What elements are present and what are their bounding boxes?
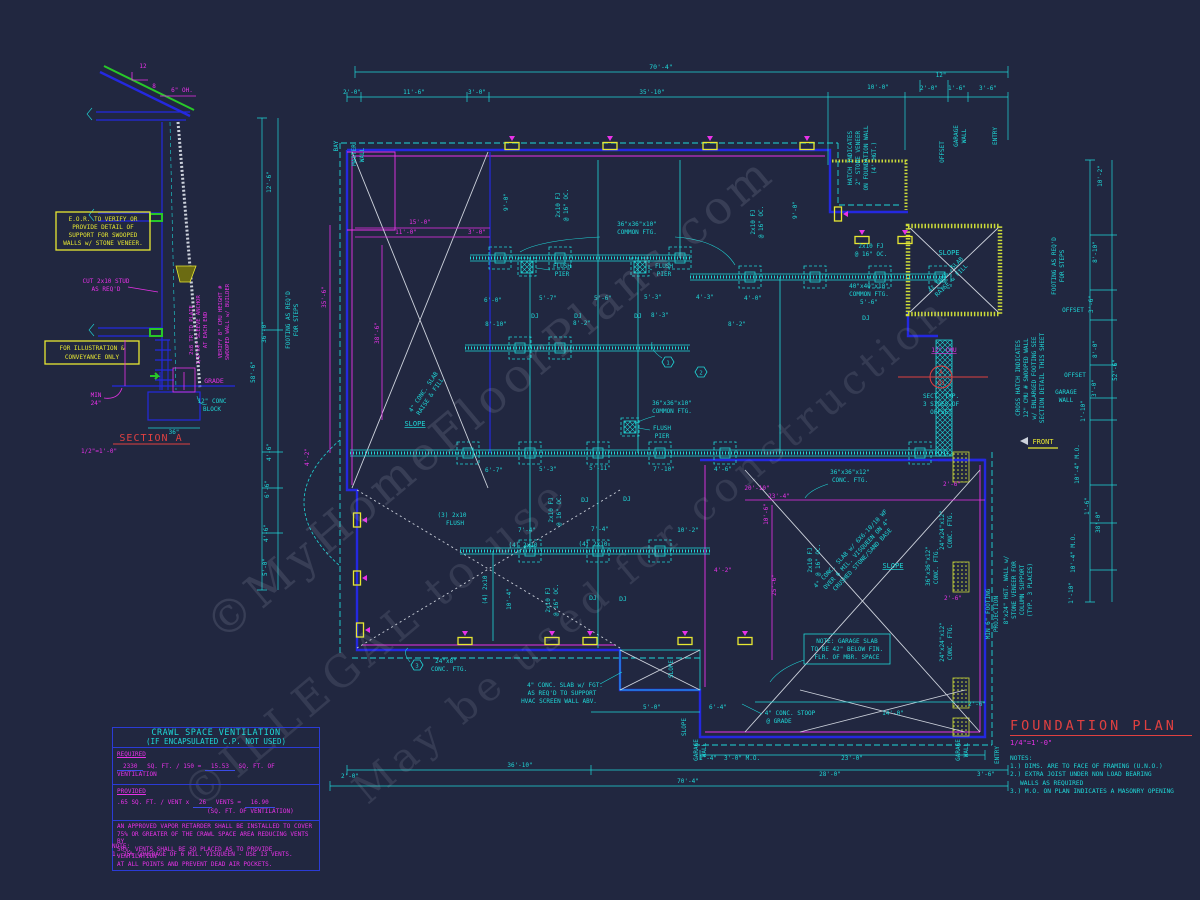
provided-formula: .65 SQ. FT. / VENT x [117,799,189,806]
dim: 4'-0" [744,295,762,302]
footing-steps-note: FOOTING AS REQ'D FOR STEPS [285,291,300,349]
svg-text:PIER: PIER [655,433,670,440]
dj-label: DJ [581,496,589,504]
svg-text:12" CMU: 12" CMU [931,347,957,354]
svg-text:40"x40"x10": 40"x40"x10" [849,283,889,290]
cut-stud-note: AS REQ'D [92,286,121,293]
note-label: NOTE: [112,843,372,851]
svg-text:2" STONE VENEER: 2" STONE VENEER [855,131,862,186]
dim: 4'-6" [263,524,270,542]
svg-text:VERIFY 8" CMU HEIGHT #: VERIFY 8" CMU HEIGHT # [218,285,224,359]
dim: 2'-0" [920,85,938,92]
dim: 2'-6" [968,701,986,708]
common-ftg-40-label: 40"x40"x10" COMMON FTG. 5'-6" [849,283,889,306]
note-line: 2.) EXTRA JOIST UNDER NON LOAD BEARING [1010,771,1192,779]
svg-text:4" CONC. SLAB w/ FGT.: 4" CONC. SLAB w/ FGT. [527,682,603,689]
dim: 8'-2" [728,321,746,328]
svg-text:COMMON FTG.: COMMON FTG. [849,291,889,298]
required-area-value: 2330 [117,763,143,772]
svg-text:PIER: PIER [555,271,570,278]
min-footing-note: MIN 6" FOOTING PROJECTION [985,588,1000,639]
section-a-scale: 1/2"=1'-0" [81,448,117,455]
svg-text:CONC. FTG.: CONC. FTG. [947,512,954,548]
svg-text:3: 3 [415,664,418,670]
illustration-note-line: FOR ILLUSTRATION & [59,345,124,352]
svg-text:CONC. FTG.: CONC. FTG. [947,624,954,660]
svg-text:24"x8": 24"x8" [435,658,457,665]
crawl-table-footnote: NOTE: 1. 75% COVERAGE OF 6 MIL. VISQUEEN… [112,843,372,859]
title-block: FOUNDATION PLAN 1/4"=1'-0" NOTES: 1.) DI… [1010,718,1192,796]
wall-tag: OFFSET [1064,372,1086,379]
dim: 7'-4" [591,526,609,533]
illustration-note-line: CONVEYANCE ONLY [65,354,120,361]
provided-mid: VENTS = [216,799,241,806]
flush4-label: (4) 2x10 [509,542,538,549]
dim: 9'-0" [503,193,510,211]
slope-label: SLOPE [404,420,425,428]
conc-ftg-3636-label: 36"x36"x12" CONC. FTG. [925,546,940,586]
flush3-label: (3) 2x10 FLUSH [438,512,467,527]
slope-label: SLOPE [668,660,675,678]
dj-label: DJ [531,312,539,320]
dim: 4'-6" [266,443,273,461]
flush-pier-label: FLUSH PIER [648,263,673,278]
pitch-run: 8 [152,83,156,90]
cross-hatch-note: CROSS HATCH INDICATES 12" CMU # SWOOPED … [1015,332,1046,423]
dimension-lines [257,66,1117,791]
wall-tag: GARAGE WALL [693,739,708,761]
conc-ftg-3636-label: 36"x36"x12" CONC. FTG. [805,469,870,498]
slope-label: SLOPE [938,249,959,257]
svg-text:Ø3: Ø3 [937,380,945,387]
dim: 4'-6" [714,466,732,473]
blueprint-sheet: 12 8 6" OH. E.O.R. TO VERIFY OR PROVIDE … [0,0,1200,900]
dim: 38'-0" [1095,511,1102,533]
cut-stud-note: CUT 2x10 STUD [83,278,130,285]
provided-vent-count: 26 [193,799,212,808]
plan-scale: 1/4"=1'-0" [1010,739,1192,747]
dim: 7'-10" [653,466,675,473]
plan-labels: 70'-4" 2'-0" 11'-6" 3'-0" 35'-10" 10'-0"… [250,63,1119,785]
hex-marker: 2 [695,367,707,377]
svg-text:CONC. FTG.: CONC. FTG. [933,548,940,584]
dim: 6'-7" [485,467,503,474]
eor-note-line: SUPPORT FOR SWOOPED [69,232,138,239]
fj-note: 2x10 FJ@ 16" OC. [545,584,560,617]
verify-note: VERIFY 8" CMU HEIGHT # SWOOPED WALL w/ B… [218,283,231,360]
svg-text:1/2"x4" SLEEVE ANCHOR: 1/2"x4" SLEEVE ANCHOR [196,295,202,365]
stoop-note: 4" CONC. STOOP @ GRADE [742,704,816,725]
flush4-label: (4) 2x10 [579,541,608,548]
dim: 23'-4" [768,493,790,500]
eor-note-line: PROVIDE DETAIL OF [72,224,134,231]
notes-label: NOTES: [1010,755,1192,763]
dim: 3'-0" M.O. [724,755,760,762]
svg-text:ON FOUNDATION WALL: ON FOUNDATION WALL [863,125,870,190]
required-result: 15.53 [205,763,235,772]
footing-steps-note: FOOTING AS REQ'D FOR STEPS [1051,237,1066,295]
svg-text:@ 16" OC.: @ 16" OC. [563,189,570,222]
anchor-note: 2x8 TR'TD PLATE 1/2"x4" SLEEVE ANCHOR AT… [189,295,209,365]
crawl-table-subtitle: (IF ENCAPSULATED C.P. NOT USED) [113,738,319,749]
svg-text:FOOTING AS REQ'D: FOOTING AS REQ'D [1051,237,1058,295]
provided-result: 16.90 [245,799,275,808]
svg-text:FLUSH: FLUSH [446,520,464,527]
svg-text:36"x36"x12": 36"x36"x12" [925,546,932,586]
svg-text:PIER: PIER [657,271,672,278]
dim: 36'-10" [507,762,532,769]
dj-label: DJ [862,314,870,322]
dim: 5'-11" [589,465,611,472]
wall-tag: OFFSET [939,141,946,163]
svg-text:AT EACH END: AT EACH END [203,312,209,348]
svg-text:@ 16" OC.: @ 16" OC. [556,494,563,527]
dim: 6'-0" [484,297,502,304]
stone-hatch-note: HATCH INDICATES 2" STONE VENEER ON FOUND… [847,125,878,190]
svg-text:A: A [939,369,943,376]
svg-text:CONC. FTG.: CONC. FTG. [431,666,467,673]
conc-ftg-24x8: 3 24"x8" CONC. FTG. [405,648,467,673]
eor-note-line: E.O.R. TO VERIFY OR [69,216,138,223]
svg-text:GARAGE: GARAGE [955,739,962,761]
wall-tag: WALL [1059,397,1074,404]
svg-text:w/ ENLARGED FOOTING SEE: w/ ENLARGED FOOTING SEE [1031,336,1038,419]
svg-text:(TYP. 3 PLACES): (TYP. 3 PLACES) [1027,563,1034,617]
svg-text:WALL: WALL [701,742,708,757]
conc-ftg-2424-label: 24"x24"x12" CONC. FTG. [939,510,954,550]
svg-text:1: 1 [666,361,669,367]
dim: 5'-0" [262,558,269,576]
svg-text:2x10 FJ: 2x10 FJ [545,587,552,612]
svg-text:MIN 6" FOOTING: MIN 6" FOOTING [985,588,992,639]
dim: 10'-0" [867,84,889,91]
dj-label: DJ [634,312,642,320]
dim: 4'-3" [696,294,714,301]
fj-note: 2x10 FJ@ 16" OC. [548,494,563,527]
dj-label: DJ [623,495,631,503]
dim: 23'-0" [841,755,863,762]
grade-label: GRADE [204,377,224,385]
dim: 3'-6" [979,85,997,92]
dim: 3'-0" [468,89,486,96]
dim: 5'-3" [539,466,557,473]
wall-tag: OFFSET [1062,307,1084,314]
dim: 35'-10" [639,89,664,96]
garage-slab-note-box: NOTE: GARAGE SLAB TO BE 42" BELOW FIN. F… [770,634,890,682]
flush4-label: (4) 2x10 [482,575,489,604]
dim: 2'-0" [343,89,361,96]
note-line: WALLS AS REQUIRED [1010,780,1192,788]
svg-text:@ 16" OC.: @ 16" OC. [758,206,765,239]
fj-note: 2x10 FJ @ 16" OC. [855,243,888,258]
svg-text:COLUMN SUPPORT: COLUMN SUPPORT [1019,564,1026,615]
fj-note: 2x10 FJ@ 16" OC. [555,189,570,222]
svg-text:WALL: WALL [961,128,968,143]
dim: 20'-10" [744,485,769,492]
svg-text:FLUSH: FLUSH [653,425,671,432]
svg-text:GARAGE: GARAGE [953,125,960,147]
dim: 36'-0" [261,321,268,343]
svg-text:MASTER: MASTER [351,144,358,166]
dim: 15'-0" [409,219,431,226]
wall-tag: GARAGE WALL [955,739,970,761]
dim: 1'-6" [1084,497,1091,515]
svg-text:COMMON FTG.: COMMON FTG. [652,408,692,415]
section-a-title: SECTION A [119,433,182,444]
dim: 8'-3" [651,312,669,319]
dim: 2'-0" [341,773,359,780]
svg-text:24"x24"x12": 24"x24"x12" [939,622,946,662]
svg-text:24"x24"x12": 24"x24"x12" [939,510,946,550]
dim: 10'-4" [506,588,513,610]
dim: 1'-10" [1068,582,1075,604]
slab-raise-label: 4" CONC. SLAB RAISE & FILL [408,370,447,418]
svg-text:2x10 FJ: 2x10 FJ [750,209,757,234]
svg-text:HATCH INDICATES: HATCH INDICATES [847,131,854,186]
svg-text:FLUSH: FLUSH [655,263,673,270]
dim: 52'-6" [1112,359,1119,381]
svg-text:NOTE: GARAGE SLAB: NOTE: GARAGE SLAB [816,638,878,645]
column-support-note: 8"x24" HGT. WALL w/ STONE VENEER FOR COL… [1003,555,1034,624]
dim: 12" [936,72,947,79]
dim: 8'-2" [573,320,591,327]
plan-notes: NOTES: 1.) DIMS. ARE TO FACE OF FRAMING … [1010,755,1192,796]
note-line: 3.) M.O. ON PLAN INDICATES A MASONRY OPE… [1010,788,1192,796]
provided-label: PROVIDED [113,786,319,798]
svg-text:TO BE 42" BELOW FIN.: TO BE 42" BELOW FIN. [811,646,883,653]
dim: 7'-4" [518,527,536,534]
hvac-note: 4" CONC. SLAB w/ FGT. AS REQ'D TO SUPPOR… [521,672,622,705]
svg-text:WALL: WALL [359,147,366,162]
eor-note-line: WALLS w/ STONE VENEER. [63,240,142,247]
dim: 14'-0" [882,710,904,717]
flush-pier-label: FLUSH PIER [536,263,571,278]
svg-text:SECT. TYP.: SECT. TYP. [923,393,959,400]
dim: 5'-7" [539,295,557,302]
dj-label: DJ [574,312,582,320]
dim: 5'-0" [643,704,661,711]
required-label: REQUIRED [113,749,319,761]
wall-tag: BAY [333,140,340,151]
svg-text:2: 2 [699,371,702,377]
svg-text:2x10 FJ: 2x10 FJ [807,547,814,572]
dim: 1'-10" [1080,400,1087,422]
dim: 5'-3" [644,294,662,301]
svg-text:@ 16" OC.: @ 16" OC. [855,251,888,258]
dj-label: DJ [619,595,627,603]
conc-ftg-2424-label: 24"x24"x12" CONC. FTG. [939,622,954,662]
svg-text:FOOTING AS REQ'D: FOOTING AS REQ'D [285,291,292,349]
dim: 6'-6" [264,480,271,498]
dj-label: DJ [589,594,597,602]
block-label: BLOCK [203,406,221,413]
svg-text:2x8 TR'TD PLATE: 2x8 TR'TD PLATE [189,305,195,355]
min-label: MIN [91,392,102,399]
dim: 5'-6" [594,295,612,302]
dim: 2'-6" [944,595,962,602]
dim: 10'-6" [763,503,770,525]
svg-text:FOR STEPS: FOR STEPS [1059,249,1066,282]
dim: 10'-2" [1097,165,1104,187]
section-a-detail: 12 8 6" OH. E.O.R. TO VERIFY OR PROVIDE … [45,63,235,455]
slope-label: SLOPE [882,562,903,570]
svg-text:2x10 FJ: 2x10 FJ [548,497,555,522]
common-ftg-label: 36"x36"x10" COMMON FTG. [520,221,735,265]
dim: 28'-0" [819,771,841,778]
dim: 11'-0" [395,229,417,236]
svg-text:FLUSH: FLUSH [553,263,571,270]
dim: 70'-4" [649,63,672,71]
overhang-label: 6" OH. [171,87,193,94]
dim: 3'-6" [1088,295,1095,313]
hex-marker: 1 [652,342,674,367]
svg-text:(4' HGT.): (4' HGT.) [871,142,878,175]
svg-text:(3) 2x10: (3) 2x10 [438,512,467,519]
svg-text:CROSS HATCH INDICATES: CROSS HATCH INDICATES [1015,340,1022,416]
svg-text:@ 16" OC.: @ 16" OC. [553,584,560,617]
note-line: 1. 75% COVERAGE OF 6 MIL. VISQUEEN - USE… [112,851,372,859]
svg-text:OFFSET: OFFSET [930,409,952,416]
dim: 10'-4" M.O. [1070,533,1077,573]
dim: 35'-6" [321,286,328,308]
svg-text:FOR STEPS: FOR STEPS [293,303,300,336]
svg-text:CONC. FTG.: CONC. FTG. [832,477,868,484]
dim: 8'-0" [1092,340,1099,358]
dim: 70'-4" [677,778,699,785]
dim: 25'-6" [771,574,778,596]
wall-tag: MASTER WALL [351,144,366,166]
svg-text:36"x36"x10": 36"x36"x10" [617,221,657,228]
dim: 12'-6" [266,171,273,193]
svg-text:AS REQ'D TO SUPPORT: AS REQ'D TO SUPPORT [528,690,597,697]
svg-text:3 SIDES OF: 3 SIDES OF [923,401,960,408]
wall-tag: ENTRY [992,127,999,145]
wall-tag: ENTRY [994,746,1001,764]
svg-text:36"x36"x10": 36"x36"x10" [652,400,692,407]
wall-tag: GARAGE WALL [953,125,968,147]
svg-text:2x10 FJ: 2x10 FJ [555,192,562,217]
svg-text:HVAC SCREEN WALL ABV.: HVAC SCREEN WALL ABV. [521,698,597,705]
flush-pier-label: FLUSH PIER [638,425,671,440]
provided-unit: (SQ. FT. OF VENTILATION) [207,808,294,815]
fj-note: 2x10 FJ@ 16" OC. [750,206,765,239]
dim: 3'-6" [977,771,995,778]
dim: 1'-6" [948,85,966,92]
wall-tag: GARAGE [1055,389,1077,396]
front-marker: FRONT [1020,437,1058,448]
dim: 6'-4" [709,704,727,711]
svg-text:4" CONC. STOOP: 4" CONC. STOOP [765,710,816,717]
dim: 4'-2" [304,448,311,466]
dim: 3'-0" [468,229,486,236]
min-value: 24" [91,400,102,407]
svg-text:GARAGE: GARAGE [693,739,700,761]
dim: 2'-6" [943,481,961,488]
svg-text:@ 16" OC.: @ 16" OC. [815,544,822,577]
required-formula: SQ. FT. / 150 = [147,763,201,770]
page-title: FOUNDATION PLAN [1010,718,1192,736]
svg-text:WALL: WALL [963,742,970,757]
fj-note: 2x10 FJ@ 16" OC. [807,544,822,577]
svg-text:COMMON FTG.: COMMON FTG. [617,229,657,236]
svg-text:STONE VENEER FOR: STONE VENEER FOR [1011,561,1018,619]
dim: 58'-6" [250,361,257,383]
svg-text:8"x24" HGT. WALL w/: 8"x24" HGT. WALL w/ [1003,555,1010,624]
svg-text:@ GRADE: @ GRADE [766,718,792,725]
dim: 9'-0" [792,201,799,219]
dim: 4'-2" [714,567,732,574]
pitch-rise: 12 [139,63,147,70]
svg-text:2x10 FJ: 2x10 FJ [858,243,883,250]
svg-text:SWOOPED WALL w/ BUILDER: SWOOPED WALL w/ BUILDER [225,283,231,360]
dim: 8'-10" [1092,241,1099,263]
svg-text:PROJECTION: PROJECTION [993,596,1000,633]
dim: 11'-6" [403,89,425,96]
dim: 10'-4" M.O. [1074,444,1081,484]
svg-text:SECTION DETAIL THIS SHEET: SECTION DETAIL THIS SHEET [1039,332,1046,423]
note-line: 1.) DIMS. ARE TO FACE OF FRAMING (U.N.O.… [1010,763,1192,771]
common-ftg-label: 36"x36"x10" COMMON FTG. [635,400,692,424]
svg-text:12" CMU # SWOOPED WALL: 12" CMU # SWOOPED WALL [1023,338,1030,418]
svg-text:FLR. OF MBR. SPACE: FLR. OF MBR. SPACE [814,654,879,661]
dim: 10'-2" [677,527,699,534]
svg-text:FRONT: FRONT [1032,438,1054,446]
dim: 3'-0" [1091,379,1098,397]
dim: 38'-6" [374,322,381,344]
svg-text:36"x36"x12": 36"x36"x12" [830,469,870,476]
dim: 8'-10" [485,321,507,328]
garage-slab-label: 4" CONC. SLAB w/ 6X6-10/10 WF OVER 6 MIL… [813,508,902,601]
svg-text:5'-6": 5'-6" [860,299,878,306]
wall-tag: SLOPE [681,718,688,736]
